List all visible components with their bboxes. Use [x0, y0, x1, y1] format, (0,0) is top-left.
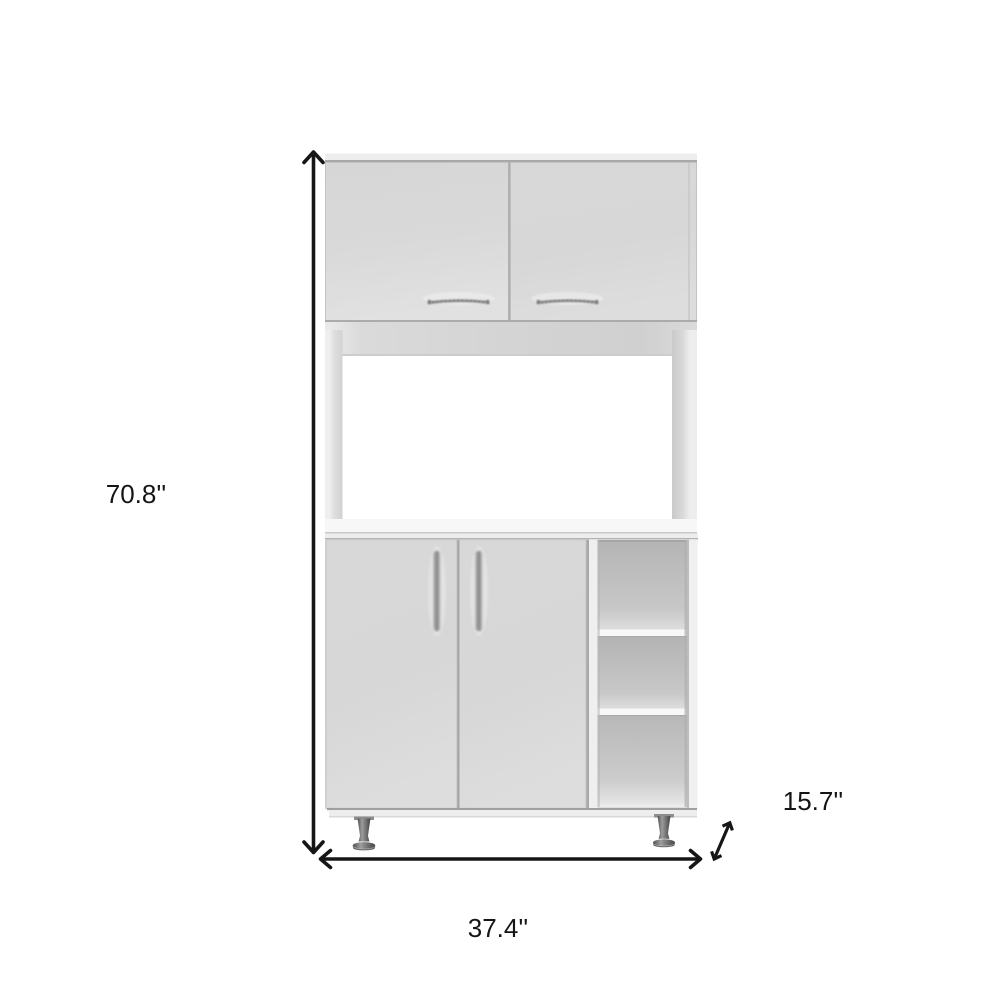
- svg-text:70.8'': 70.8'': [106, 479, 167, 509]
- svg-text:15.7'': 15.7'': [783, 786, 844, 816]
- svg-text:37.4'': 37.4'': [468, 913, 529, 943]
